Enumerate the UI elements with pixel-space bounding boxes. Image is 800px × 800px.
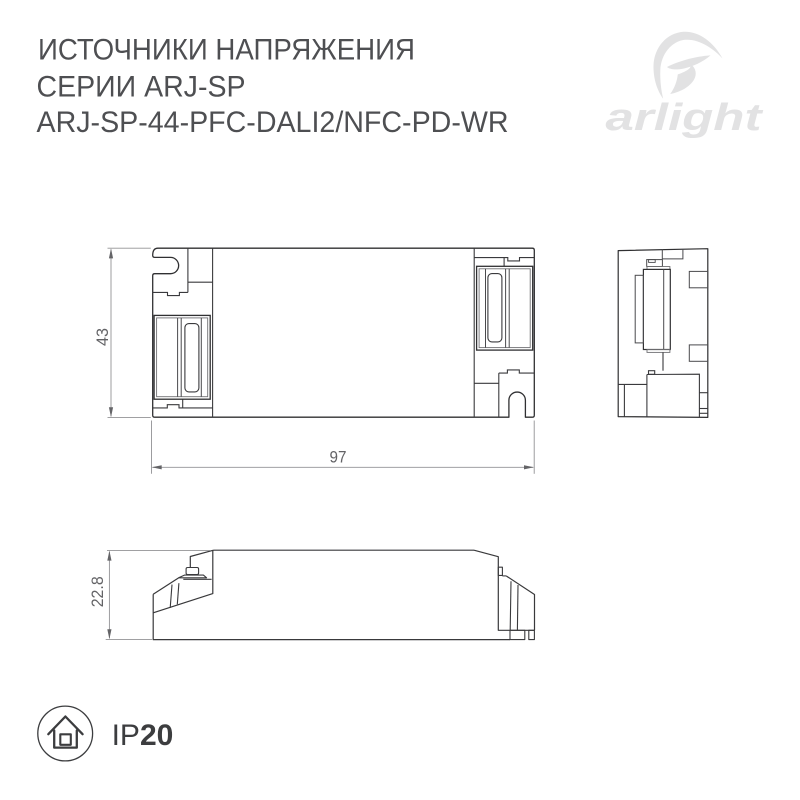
svg-text:ИСТОЧНИКИ НАПРЯЖЕНИЯ: ИСТОЧНИКИ НАПРЯЖЕНИЯ xyxy=(38,33,415,66)
svg-text:ARJ-SP-44-PFC-DALI2/NFC-PD-WR: ARJ-SP-44-PFC-DALI2/NFC-PD-WR xyxy=(37,106,509,139)
svg-text:СЕРИИ ARJ-SP: СЕРИИ ARJ-SP xyxy=(37,71,246,104)
svg-text:43: 43 xyxy=(93,328,112,346)
svg-text:97: 97 xyxy=(330,448,347,467)
svg-text:22.8: 22.8 xyxy=(88,576,107,607)
svg-text:IP20: IP20 xyxy=(112,719,174,752)
svg-text:arlight: arlight xyxy=(606,97,764,139)
